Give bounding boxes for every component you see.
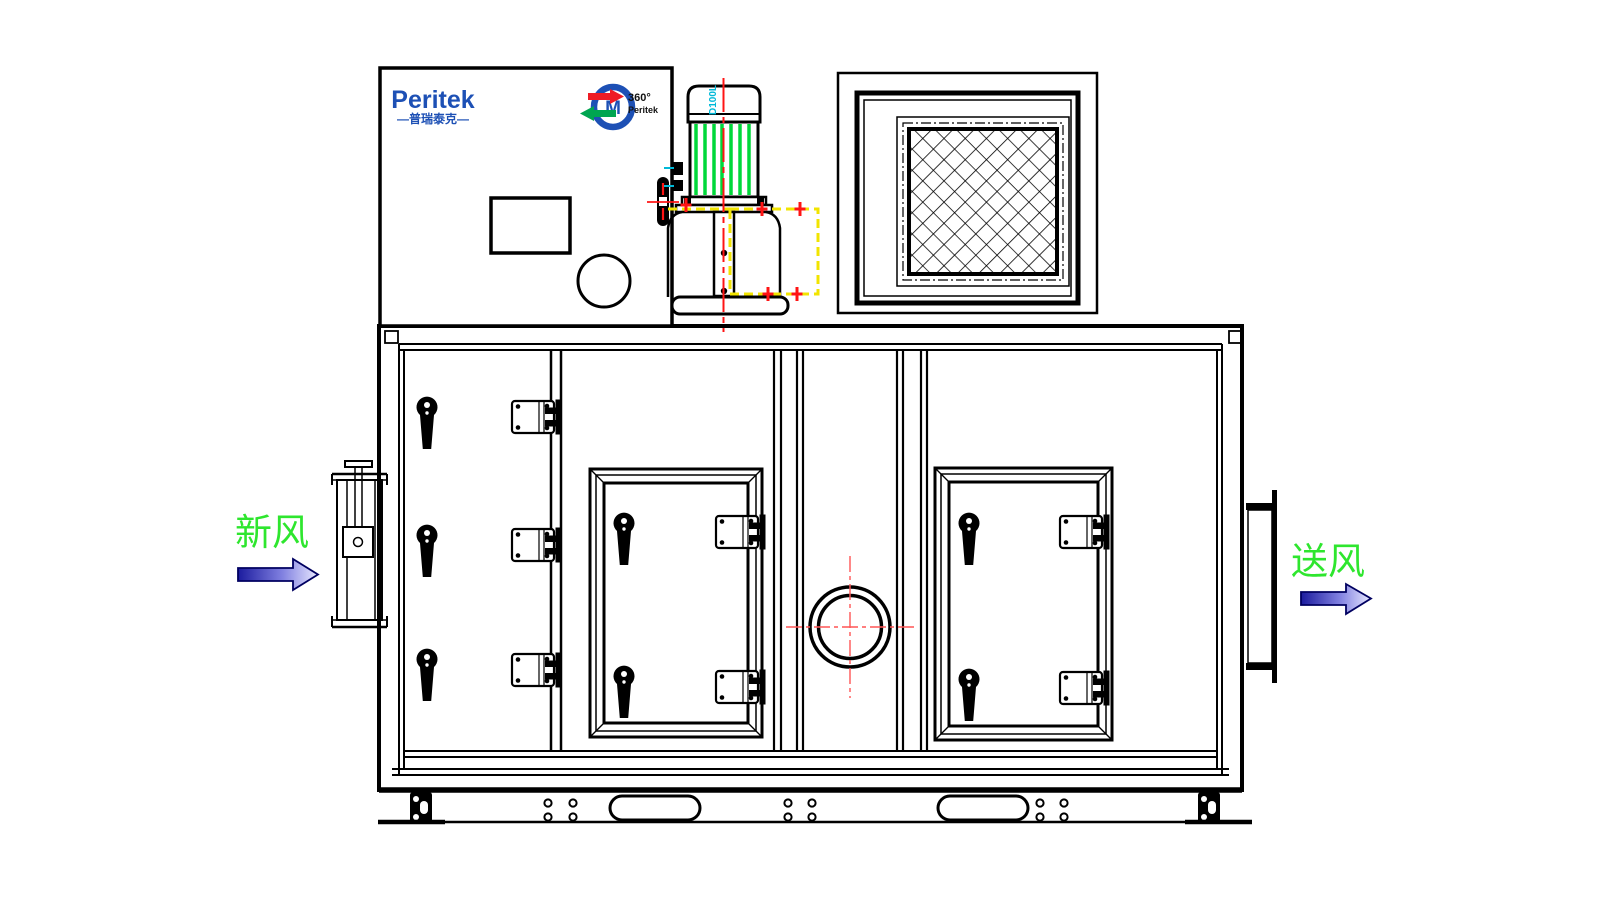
door-latch: [512, 528, 562, 563]
rotor-logo-line1: 360°: [628, 92, 651, 104]
technical-drawing: Peritek —普瑞泰克— M 360° Peritek: [0, 0, 1613, 897]
door-latch: [512, 653, 562, 688]
motor-model-label: D100L: [708, 85, 719, 115]
drawing-canvas: Peritek —普瑞泰克— M 360° Peritek: [0, 0, 1613, 897]
rotor-logo-line2: Peritek: [628, 105, 659, 115]
brand-logo-text: Peritek: [391, 86, 474, 114]
door-latch: [1060, 671, 1110, 706]
door-latch: [716, 670, 766, 705]
door-latch: [716, 515, 766, 550]
background: [0, 0, 1613, 897]
damper-actuator-box: [343, 527, 373, 557]
motor-base-plate: [672, 297, 788, 314]
filter-mesh: [909, 129, 1057, 274]
door-latch: [1060, 515, 1110, 550]
door-latch: [512, 400, 562, 435]
brand-logo-subtext: —普瑞泰克—: [397, 111, 469, 126]
outlet-label: 送风: [1291, 541, 1365, 582]
peritek-panel: Peritek —普瑞泰克— M 360° Peritek: [380, 68, 683, 326]
inlet-label: 新风: [235, 512, 309, 553]
